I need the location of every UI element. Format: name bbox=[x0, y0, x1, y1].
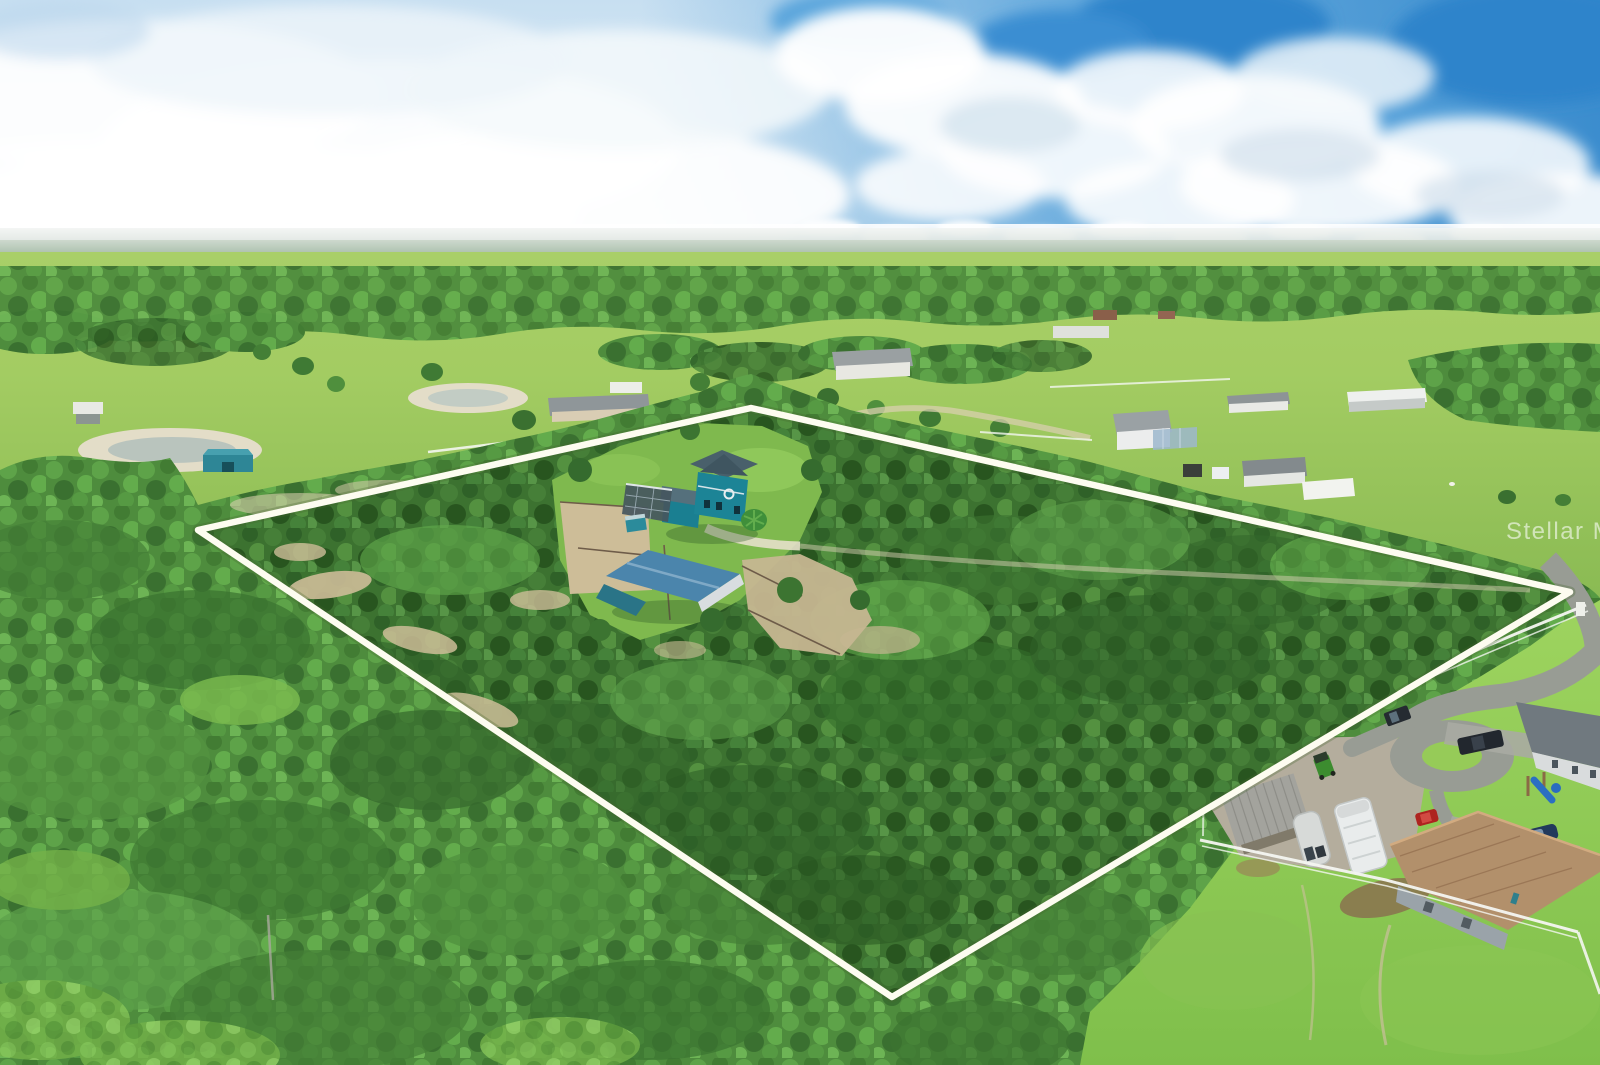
tree bbox=[292, 357, 314, 375]
sand-trail bbox=[510, 590, 570, 610]
tree bbox=[512, 410, 536, 430]
teal-barn-roof bbox=[203, 449, 253, 455]
tree bbox=[589, 619, 611, 641]
small-teal-shed bbox=[625, 514, 647, 533]
tree bbox=[421, 363, 443, 381]
red-barn bbox=[1158, 311, 1175, 319]
white-horse bbox=[1449, 482, 1455, 486]
shed-wall bbox=[76, 414, 100, 424]
sand-trail bbox=[274, 543, 326, 561]
shed-roof bbox=[73, 402, 103, 414]
window bbox=[716, 502, 722, 510]
window bbox=[1552, 760, 1558, 768]
barn-opening bbox=[222, 462, 234, 472]
tree bbox=[700, 608, 724, 632]
tree bbox=[850, 590, 870, 610]
cloud bbox=[855, 149, 1045, 221]
tree bbox=[777, 577, 803, 603]
cloud bbox=[90, 5, 570, 115]
aerial-photo: Stellar MLS bbox=[0, 0, 1600, 1065]
tree bbox=[801, 459, 823, 481]
canopy-blob bbox=[410, 845, 630, 955]
lime-patch bbox=[180, 675, 300, 725]
pond-water bbox=[428, 389, 508, 407]
lawn-mottle bbox=[1360, 945, 1600, 1055]
sand-paddock-extension bbox=[840, 626, 920, 654]
cloud-shadow bbox=[1415, 171, 1565, 219]
tree bbox=[568, 458, 592, 482]
window bbox=[704, 500, 710, 508]
cloud-shadow bbox=[1220, 129, 1380, 181]
window bbox=[1590, 770, 1596, 778]
aerial-photo-canvas bbox=[0, 0, 1600, 1065]
white-house bbox=[1053, 326, 1109, 338]
cloud bbox=[1235, 37, 1435, 113]
red-barn bbox=[1093, 310, 1117, 320]
window bbox=[1572, 766, 1578, 774]
sand-trail bbox=[654, 641, 706, 659]
horse-trailer bbox=[1183, 464, 1202, 477]
blue-barrel bbox=[1551, 783, 1561, 793]
tree bbox=[327, 376, 345, 392]
fence-gate-box bbox=[1576, 602, 1585, 616]
tree-clump bbox=[992, 340, 1092, 372]
palm-tree bbox=[741, 509, 767, 531]
lawn-mottle bbox=[1140, 910, 1320, 1010]
bush bbox=[1498, 490, 1516, 504]
white-shed bbox=[610, 382, 642, 393]
canopy-light bbox=[360, 525, 540, 595]
main-walls bbox=[694, 472, 748, 522]
white-rv bbox=[1212, 467, 1229, 479]
tree bbox=[690, 373, 710, 391]
cloud-shadow bbox=[940, 97, 1080, 153]
pool-enclosure bbox=[1153, 427, 1197, 450]
canopy-light bbox=[610, 660, 790, 740]
canopy-blob bbox=[90, 590, 310, 690]
window bbox=[734, 506, 740, 514]
tree bbox=[253, 344, 271, 360]
bush bbox=[1555, 494, 1571, 506]
tree-clump bbox=[185, 312, 305, 352]
